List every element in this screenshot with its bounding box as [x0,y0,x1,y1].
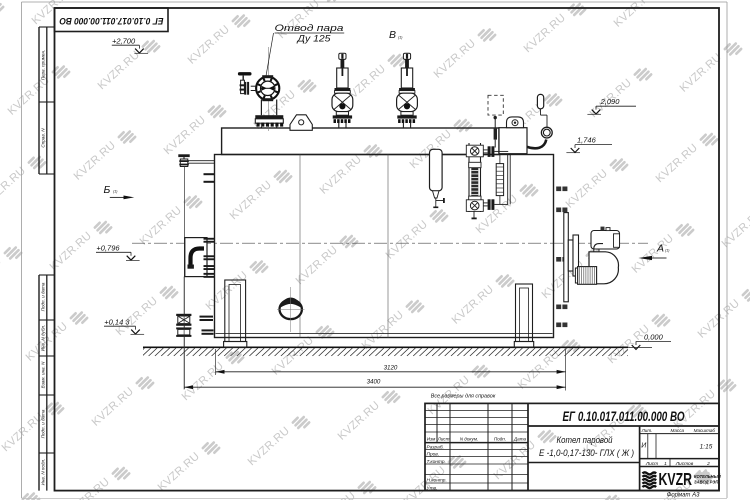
svg-text:Инв. N подл.: Инв. N подл. [40,459,45,486]
svg-text:Масса: Масса [671,428,685,433]
svg-text:Лит.: Лит. [641,428,653,433]
svg-text:Отвод пара: Отвод пара [275,23,344,34]
svg-text:Лист: Лист [437,437,450,442]
svg-text:Котел паровой: Котел паровой [557,435,613,445]
svg-text:Подп. и дата: Подп. и дата [40,409,45,438]
svg-text:2,090: 2,090 [600,97,621,106]
svg-text:А: А [656,242,664,254]
svg-text:KVZR: KVZR [659,469,693,489]
svg-text:Изм: Изм [427,437,436,442]
svg-text:1:15: 1:15 [700,443,713,450]
svg-text:2: 2 [706,461,710,467]
svg-text:Разраб.: Разраб. [427,444,444,450]
svg-text:Инв. N дубл.: Инв. N дубл. [40,325,45,352]
svg-text:ЕГ 0.10.017.011.00.000 ВО: ЕГ 0.10.017.011.00.000 ВО [563,409,685,424]
svg-text:Масштаб: Масштаб [694,428,716,433]
svg-text:Е -1,0-0,17-130- ГЛХ ( Ж ): Е -1,0-0,17-130- ГЛХ ( Ж ) [539,448,634,458]
svg-text:Н.контр.: Н.контр. [427,478,447,484]
svg-text:Б: Б [104,184,111,196]
svg-text:1,746: 1,746 [577,136,597,145]
svg-text:+0,796: +0,796 [96,244,120,253]
svg-text:1: 1 [664,461,667,467]
svg-text:(1): (1) [113,190,117,194]
svg-text:+0,14 3: +0,14 3 [104,318,130,327]
svg-text:Т.контр.: Т.контр. [427,459,446,465]
svg-text:Подп.: Подп. [494,437,506,442]
svg-text:Справ. N: Справ. N [40,128,45,148]
svg-text:КОТЕЛЬНЫЙ: КОТЕЛЬНЫЙ [694,474,722,479]
svg-text:ЕГ 0.10.017.011.00.000 ВО: ЕГ 0.10.017.011.00.000 ВО [60,16,164,26]
svg-text:Дата: Дата [513,437,527,442]
svg-text:0,000: 0,000 [644,333,664,342]
svg-text:3400: 3400 [367,379,381,386]
svg-text:Листов: Листов [675,461,694,467]
svg-text:(1): (1) [398,36,402,40]
svg-text:Утв.: Утв. [427,486,438,492]
svg-text:Все размеры для справок: Все размеры для справок [431,394,496,400]
svg-text:Перв. примен.: Перв. примен. [40,50,45,81]
svg-text:Подп. и дата: Подп. и дата [40,282,45,311]
svg-text:N докум.: N докум. [460,437,479,442]
svg-text:ЗАВОД РЭП: ЗАВОД РЭП [694,480,719,485]
svg-text:+2,700: +2,700 [112,37,136,46]
svg-text:3120: 3120 [384,365,398,372]
svg-text:Формат А3: Формат А3 [667,492,700,498]
svg-text:В: В [389,29,396,41]
svg-text:Лист: Лист [645,461,658,467]
svg-text:Пров.: Пров. [427,452,440,458]
svg-text:Взам. инв. N: Взам. инв. N [40,361,45,388]
svg-text:Ду 125: Ду 125 [296,34,331,45]
svg-text:(1): (1) [665,248,669,252]
